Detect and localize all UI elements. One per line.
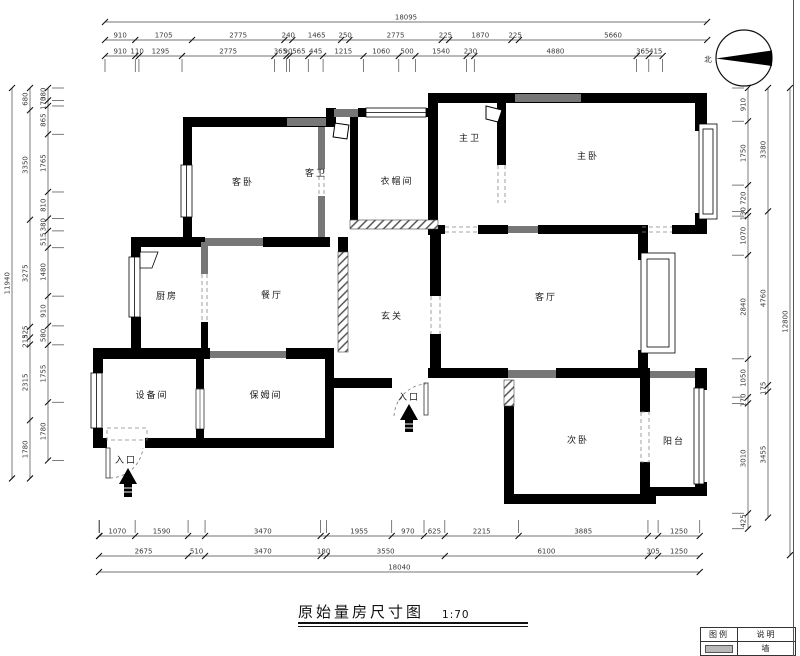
bay-window-living	[641, 253, 675, 353]
dim-label: 1780	[22, 440, 30, 458]
dim-label: 3275	[22, 264, 30, 282]
dim-label: 4880	[547, 48, 565, 56]
side-door-leaf	[106, 448, 110, 478]
dim-label: 515	[40, 233, 48, 246]
dim-label: 2840	[740, 298, 748, 316]
title-underline	[298, 626, 528, 627]
legend-wall-desc: 墙	[738, 642, 795, 655]
dim-label: 415	[649, 48, 662, 56]
dim-label: 250	[339, 32, 352, 40]
room-label: 主卧	[577, 150, 599, 162]
dim-label: 1540	[432, 48, 450, 56]
window-kitchen	[129, 257, 140, 317]
dim-label: 1060	[372, 48, 390, 56]
dim-label: 425	[740, 514, 748, 527]
dim-label: 380	[40, 218, 48, 231]
dim-label: 1070	[108, 528, 126, 536]
entrance-arrow-icon	[400, 404, 418, 432]
room-label: 设备间	[135, 389, 168, 401]
dim-label: 2315	[22, 373, 30, 391]
room-label: 主卫	[459, 132, 481, 144]
dim-label: 2675	[135, 548, 153, 556]
room-label: 客卧	[232, 176, 254, 188]
dim-label: 4760	[760, 289, 768, 307]
legend-table: 图例 说明 墙	[700, 627, 796, 656]
dim-label: 1295	[152, 48, 170, 56]
dim-label: 3470	[254, 528, 272, 536]
room-label: 玄关	[381, 310, 403, 322]
dim-label: 5660	[604, 32, 622, 40]
dim-label: 865	[40, 113, 48, 126]
dim-label: 2775	[229, 32, 247, 40]
dim-label: 18095	[395, 14, 417, 22]
room-label: 餐厅	[261, 289, 283, 301]
main-door-leaf	[424, 383, 428, 415]
dim-label: 625	[428, 528, 441, 536]
basin-fixture	[333, 123, 349, 139]
room-label: 衣帽间	[380, 175, 413, 187]
entrance-arrow-icon	[119, 468, 137, 497]
window-balcony	[694, 388, 704, 484]
dim-label: 1250	[670, 548, 688, 556]
drawing-scale: 1:70	[442, 609, 470, 622]
dim-label: 2215	[473, 528, 491, 536]
room-label: 阳台	[663, 435, 685, 447]
floorplan-sheet: { "title": { "text": "原始量房尺寸图", "scale":…	[0, 0, 800, 656]
dim-label: 11940	[4, 272, 12, 294]
dim-label: 3455	[760, 446, 768, 464]
dim-label: 6100	[537, 548, 555, 556]
dim-label: 3380	[760, 141, 768, 159]
room-label: 厨房	[156, 290, 178, 302]
dim-label: 1465	[308, 32, 326, 40]
dim-label: 305	[646, 548, 659, 556]
drawing-title-text: 原始量房尺寸图	[298, 601, 424, 622]
window-equipment	[91, 373, 102, 428]
legend-header-desc: 说明	[738, 628, 795, 641]
dim-label: 230	[464, 48, 477, 56]
legend-header-symbol: 图例	[701, 628, 738, 641]
room-label: 入口	[115, 455, 137, 466]
room-label: 客厅	[535, 291, 557, 303]
dim-label: 1070	[740, 227, 748, 245]
dim-label: 3885	[574, 528, 592, 536]
dim-label: 1705	[155, 32, 173, 40]
dim-label: 1765	[40, 154, 48, 172]
dim-label: 910	[40, 304, 48, 317]
north-label: 北	[704, 55, 712, 64]
dim-label: 3010	[740, 449, 748, 467]
floorplan-drawing: 北 18095910170527752401465250277522518702…	[0, 0, 800, 656]
dim-label: 1215	[334, 48, 352, 56]
entrance-arrows	[119, 404, 418, 497]
drawing-title: 原始量房尺寸图 1:70	[298, 600, 528, 624]
north-arrow-icon: 北	[704, 30, 772, 86]
dim-label: 365	[636, 48, 649, 56]
dim-label: 1755	[40, 365, 48, 383]
walls	[93, 93, 707, 504]
dim-label: 1780	[40, 422, 48, 440]
dim-label: 1250	[670, 528, 688, 536]
dim-label: 1955	[350, 528, 368, 536]
dim-label: 18040	[388, 564, 410, 572]
dim-label: 1870	[471, 32, 489, 40]
dim-label: 810	[40, 199, 48, 212]
sheet-border	[793, 0, 794, 656]
wall-swatch	[705, 645, 733, 653]
dim-label: 1750	[740, 144, 748, 162]
room-label: 保姆间	[249, 389, 282, 401]
dim-label: 910	[113, 32, 126, 40]
dim-label: 720	[740, 192, 748, 205]
room-label: 客卫	[305, 167, 327, 179]
dim-label: 1480	[40, 263, 48, 281]
room-label: 入口	[398, 392, 420, 403]
dim-label: 1050	[740, 369, 748, 387]
bay-window-master	[699, 124, 717, 219]
dim-label: 580	[40, 329, 48, 342]
dim-label: 970	[401, 528, 414, 536]
legend-wall-swatch-cell	[701, 642, 738, 655]
dim-label: 3470	[254, 548, 272, 556]
dim-label: 445	[309, 48, 322, 56]
dim-label: 910	[113, 48, 126, 56]
dim-label: 3350	[22, 156, 30, 174]
dim-label: 500	[400, 48, 413, 56]
dim-label: 680	[22, 92, 30, 105]
dim-label: 1590	[153, 528, 171, 536]
dim-label: 12800	[782, 310, 790, 332]
kitchen-fixture	[140, 252, 158, 268]
dim-label: 2775	[387, 32, 405, 40]
dim-label: 3550	[377, 548, 395, 556]
room-label: 次卧	[567, 434, 589, 446]
window-cloakroom-top	[366, 108, 426, 117]
dim-label: 240	[282, 32, 295, 40]
window-guest-bed	[181, 165, 192, 217]
dim-label: 565	[292, 48, 305, 56]
dim-label: 510	[190, 548, 203, 556]
dim-label: 2775	[219, 48, 237, 56]
dim-label: 910	[740, 98, 748, 111]
dim-label: 110	[130, 48, 143, 56]
